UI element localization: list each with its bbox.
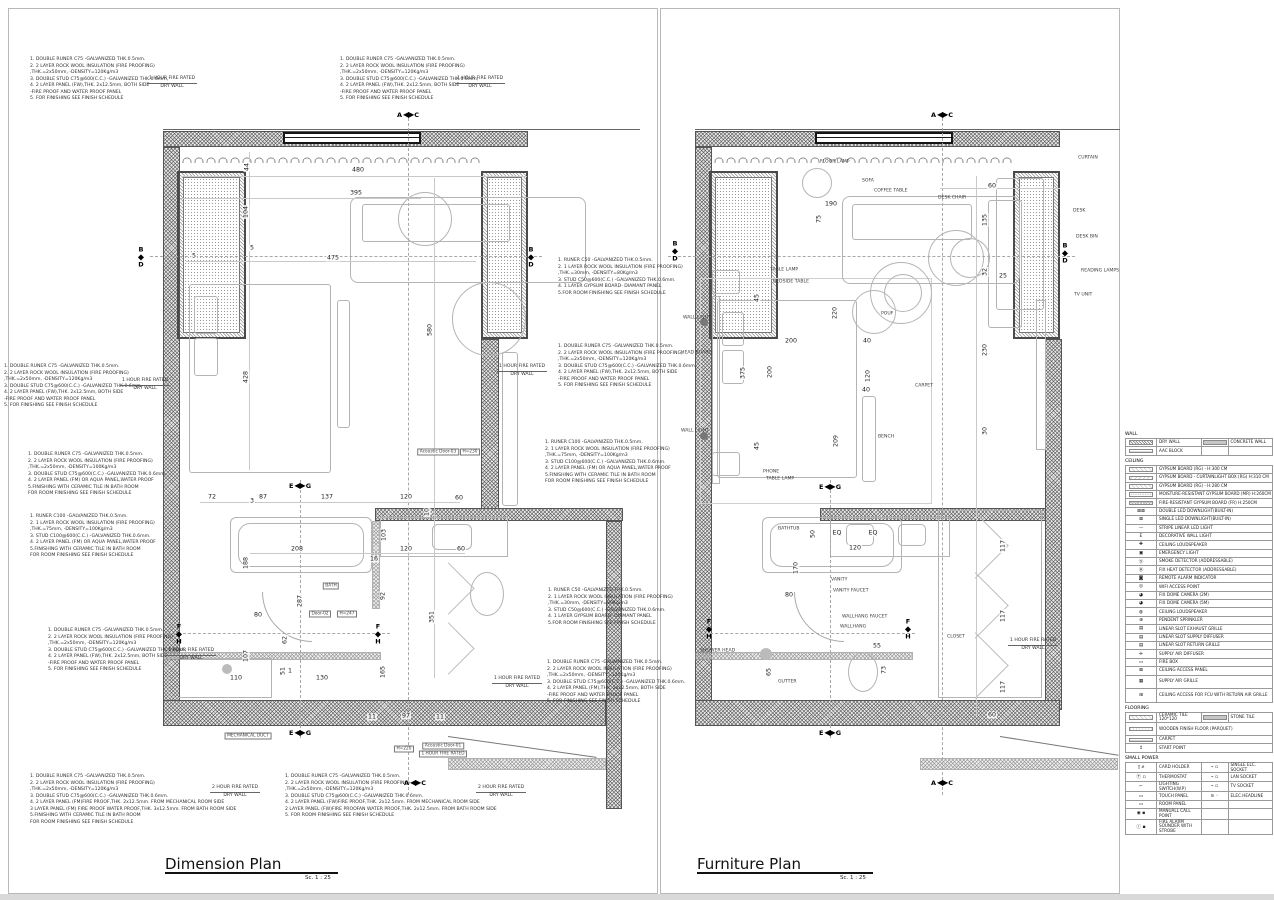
legend-symbol: ⓘ ▪ — [1126, 820, 1156, 834]
legend-label: CARPET — [1156, 736, 1272, 743]
dimension-label: 170 — [793, 561, 800, 575]
legend-section-title: SMALL POWER — [1125, 756, 1273, 761]
bedside-table — [712, 452, 740, 476]
dimension-label: 428 — [243, 370, 250, 384]
dimension-label: 165 — [380, 665, 387, 679]
legend-row: ▭TOUCH PANEL≡ ◦ELEC.HEADLINE — [1126, 792, 1272, 800]
legend-label: FIRE BOX — [1156, 659, 1272, 666]
dimension-line — [434, 178, 435, 678]
legend-label: MOISTURE-RESISTANT GYPSUM BOARD (MR) H:2… — [1156, 491, 1272, 498]
fire-rating-tag: 1 HOUR FIRE RATEDDRY WALL — [497, 364, 547, 379]
section-marker: B◆D — [672, 241, 678, 262]
legend-symbol — [1201, 439, 1228, 446]
dimension-line — [250, 553, 465, 554]
curtain-wave-line — [181, 150, 481, 163]
page-edge — [0, 894, 1274, 900]
legend-label: SINGLE ELC. SOCKET — [1228, 763, 1273, 773]
legend-symbol: ▭ — [1126, 659, 1156, 666]
legend-symbol: ⌁ ▫ — [1201, 782, 1228, 792]
legend-label: TV SOCKET — [1228, 782, 1273, 792]
legend-symbol: ◎ — [1126, 583, 1156, 590]
wallhung-toilet — [848, 652, 878, 692]
legend-symbol: Ⓢ — [1126, 558, 1156, 565]
legend-section-title: FLOORING — [1125, 706, 1273, 711]
dimension-label: 475 — [326, 255, 340, 262]
legend-label: GYPSUM BOARD (RG) - H:300 CM — [1156, 466, 1272, 473]
wall-note-block: 1. DOUBLE RUNER C75 -GALVANIZED THK.0.5m… — [30, 774, 236, 826]
dimension-label: 45 — [754, 293, 761, 303]
centerline-bd — [150, 256, 542, 257]
legend-label: LIGHTING SWITCH(W.P) — [1156, 782, 1201, 792]
legend-row: GYPSUM BOARD - CURTAINLIGHT BOX (RG) H:3… — [1126, 474, 1272, 482]
annotation-label: CLOSET — [947, 635, 965, 640]
gy1-swatch — [1129, 467, 1153, 472]
legend-row: —STRIPE LINEAR LED LIGHT — [1126, 525, 1272, 533]
legend-symbol — [1126, 439, 1156, 446]
dimension-label: 44 — [244, 162, 251, 172]
section-marker: F◆H — [905, 619, 911, 640]
carp-swatch — [1129, 738, 1153, 743]
legend-symbol — [1201, 809, 1228, 819]
legend-table: DRY WALLCONCRETE WALLAAC BLOCK — [1125, 438, 1273, 456]
legend-symbol — [1201, 713, 1228, 723]
gy4-swatch — [1129, 501, 1153, 506]
section-marker: A◀▶C — [931, 111, 953, 119]
dimension-label: 117 — [1000, 539, 1007, 553]
gy2-swatch — [1129, 476, 1153, 481]
section-marker: F◆H — [176, 624, 182, 645]
legend-label: SMOKE DETECTOR (ADDRESSABLE) — [1156, 558, 1272, 565]
legend-row: DRY WALLCONCRETE WALL — [1126, 439, 1272, 447]
vanity-basin — [898, 524, 926, 546]
dimension-label: 117 — [1000, 609, 1007, 623]
section-marker: B◆D — [1062, 243, 1068, 264]
wall-note-block: 1. RUNER C100 -GALVANIZED THK.0.5mm.2. 1… — [545, 440, 671, 486]
legend-symbol — [1201, 820, 1228, 834]
legend-row: ⊠⊠DOUBLE LED DOWNLIGHT(BUILT-IN) — [1126, 508, 1272, 516]
legend-symbol: ⊞ — [1126, 689, 1156, 702]
legend-row: GYPSUM BOARD (RG) - H:280 CM — [1126, 483, 1272, 491]
dimension-label: 135 — [982, 213, 989, 227]
legend-row: AAC BLOCK — [1126, 447, 1272, 455]
hatch-swatch — [1129, 440, 1153, 445]
coffee-table — [452, 282, 526, 356]
annotation-label: COFFEE TABLE — [874, 189, 908, 194]
bench — [862, 396, 876, 482]
legend-symbol — [1201, 447, 1228, 454]
conc-swatch — [1203, 440, 1227, 445]
legend-symbol: ⌁ ▫ — [1201, 773, 1228, 780]
dimension-label: 5 — [249, 245, 255, 252]
legend-symbol: ▭ — [1126, 801, 1156, 808]
boxed-label: H=230 — [460, 449, 480, 456]
section-marker: A◀▶C — [931, 779, 953, 787]
legend-symbol: Ⓣ ▫ — [1126, 773, 1156, 780]
centerline-eg — [830, 480, 831, 738]
legend-symbol: ◉ ▪ — [1126, 809, 1156, 819]
boxed-label: H=247 — [337, 611, 357, 618]
legend-row: ✛SUPPLY AIR DIFFUSER — [1126, 650, 1272, 658]
annotation-label: BENCH — [878, 435, 894, 440]
legend-row: MOISTURE-RESISTANT GYPSUM BOARD (MR) H:2… — [1126, 491, 1272, 499]
annotation-label: SOFA — [862, 179, 874, 184]
legend-symbol — [1126, 723, 1156, 735]
dimension-label: 190 — [824, 201, 838, 208]
dimension-label: 103 — [381, 528, 388, 542]
dimension-label: 97 — [401, 713, 411, 720]
annotation-label: SHOWER HEAD — [700, 649, 735, 654]
section-marker: E◀▶G — [289, 729, 311, 737]
legend-row: FIRE-RESISTANT GYPSUM BOARD (FR) H:250CM — [1126, 499, 1272, 507]
legend-label: LAN SOCKET — [1228, 773, 1273, 780]
fire-rating-tag: 1 HOUR FIRE RATEDDRY WALL — [147, 76, 197, 91]
legend-row: WOODEN FINISH FLOOR (PARQUET) — [1126, 723, 1272, 736]
dimension-label: 80 — [253, 612, 263, 619]
dimension-label: 60 — [456, 546, 466, 553]
section-marker: E◀▶G — [289, 482, 311, 490]
legend-symbol: ⊕ — [1126, 617, 1156, 624]
dimension-label: 395 — [349, 190, 363, 197]
annotation-label: VANITY FAUCET — [833, 589, 869, 594]
wall-note-block: 1. DOUBLE RUNER C75 -GALVANIZED THK.0.5m… — [547, 660, 685, 706]
legend-label: THERMOSTAT — [1156, 773, 1201, 780]
party-wall-right — [1045, 339, 1062, 710]
legend-label: SUPPLY AIR GRILLE — [1156, 676, 1272, 688]
legend-row: ▤LINEAR SLOT EXHAUST GRILLE — [1126, 625, 1272, 633]
legend-label: LINEAR SLOT EXHAUST GRILLE — [1156, 625, 1272, 632]
aac-swatch — [1129, 449, 1153, 454]
legend-symbol: ▤ — [1126, 625, 1156, 632]
legend-label: FIRE ALARM SOUNDER WITH STROBE — [1156, 820, 1201, 834]
legend-label: CEILING ACCESS FOR FCU WITH RETURN AIR G… — [1156, 689, 1272, 702]
dimension-label: 60 — [987, 183, 997, 190]
dimension-label: 11 — [367, 714, 377, 721]
pillow — [722, 312, 744, 346]
annotation-label: WALLHANG FAUCET — [842, 615, 887, 620]
dimension-label: 32 — [982, 267, 989, 277]
dimension-label: 200 — [767, 365, 774, 379]
legend-symbol: ⌁ ▫ — [1201, 763, 1228, 773]
legend-symbol: ✛ — [1126, 650, 1156, 657]
annotation-label: CURTAIN — [1078, 156, 1098, 161]
legend-symbol: ◍ — [1126, 608, 1156, 615]
dimension-label: 62 — [282, 635, 289, 645]
legend-row: ▭FIRE BOX — [1126, 659, 1272, 667]
dimension-label: 45 — [754, 441, 761, 451]
fire-rating-tag: 1 HOUR FIRE RATEDDRY WALL — [455, 76, 505, 91]
tv-unit — [1036, 300, 1046, 450]
legend-row: ⊕PENDENT SPRINKLER — [1126, 617, 1272, 625]
wall-note-block: 1. RUNER C50 -GALVANIZED THK.0.5mm.2. 1 … — [548, 588, 673, 627]
legend-label: CEILING LOUDSPEAKER — [1156, 608, 1272, 615]
legend-symbol: — — [1126, 525, 1156, 532]
dimension-label: 137 — [320, 494, 334, 501]
legend-label: START POINT — [1156, 744, 1272, 751]
legend-label: STONE TILE — [1228, 713, 1273, 723]
dimension-line — [940, 188, 1060, 189]
entry-threshold-wall — [448, 758, 606, 770]
dimension-label: 107 — [243, 649, 250, 663]
legend-row: ▦SUPPLY AIR GRILLE — [1126, 676, 1272, 689]
dimension-label: 80 — [784, 592, 794, 599]
dimension-label: 120 — [399, 494, 413, 501]
dimension-line — [249, 152, 250, 470]
bench — [337, 300, 350, 428]
pillow — [194, 338, 218, 376]
legend-label: LINEAR SLOT RETURN GRILLE — [1156, 642, 1272, 649]
legend-row: ⊞CEILING ACCESS FOR FCU WITH RETURN AIR … — [1126, 689, 1272, 703]
legend-label — [1228, 820, 1273, 834]
legend-label: FIX HEAT DETECTOR (ADDRESSABLE) — [1156, 566, 1272, 573]
legend-symbol: ▤ — [1126, 642, 1156, 649]
pillow — [194, 296, 218, 334]
legend-symbol: E — [1126, 533, 1156, 540]
toilet — [470, 572, 504, 616]
legend-symbol: ▤ — [1126, 634, 1156, 641]
gy3-swatch — [1129, 492, 1153, 497]
legend-label: CEILING LOUDSPEAKER — [1156, 541, 1272, 548]
exterior-wall-bottom — [163, 700, 606, 726]
entry-threshold-wall — [920, 758, 1118, 770]
legend-row: ◍CEILING LOUDSPEAKER — [1126, 608, 1272, 616]
annotation-label: TV UNIT — [1074, 293, 1092, 298]
legend-row: ✚CEILING LOUDSPEAKER — [1126, 541, 1272, 549]
legend-label: TOUCH PANEL — [1156, 792, 1201, 799]
legend-symbol: ◙ — [1126, 575, 1156, 582]
dimension-label: 130 — [315, 675, 329, 682]
annotation-label: PHONE — [763, 470, 779, 475]
legend-label: FIRE-RESISTANT GYPSUM BOARD (FR) H:250CM — [1156, 499, 1272, 506]
dimension-line — [976, 176, 977, 716]
dimension-label: 375 — [740, 366, 747, 380]
legend-symbol: ▯ ⌀ — [1126, 763, 1156, 773]
legend-label: GYPSUM BOARD (RG) - H:280 CM — [1156, 483, 1272, 490]
legend-row: ◉ ▪MANUALL CALL POINT — [1126, 809, 1272, 820]
annotation-label: CARPET — [915, 384, 933, 389]
fire-rating-tag: 1 HOUR FIRE RATEDDRY WALL — [120, 378, 170, 393]
legend-row: ▤LINEAR SLOT RETURN GRILLE — [1126, 642, 1272, 650]
section-marker: E◀▶G — [819, 483, 841, 491]
top-boundary-line — [163, 129, 640, 130]
curtain-wave-line — [713, 150, 1013, 163]
annotation-label: GUTTER — [778, 680, 797, 685]
boxed-label: BATH — [323, 583, 339, 590]
plan-scale-furniture: Sc. 1 : 25 — [840, 875, 866, 881]
shower-head — [760, 648, 772, 660]
armchair — [398, 192, 452, 246]
legend-symbol — [1126, 499, 1156, 506]
dimension-label: 40 — [862, 338, 872, 345]
dimension-label: 120 — [848, 545, 862, 552]
legend-label — [1228, 447, 1273, 454]
legend-symbol — [1126, 447, 1156, 454]
legend-symbol — [1126, 483, 1156, 490]
boxed-label: 1 HOUR FIRE RATED — [419, 751, 467, 758]
legend-row: GYPSUM BOARD (RG) - H:300 CM — [1126, 466, 1272, 474]
legend-row: ⌐LIGHTING SWITCH(W.P)⌁ ▫TV SOCKET — [1126, 782, 1272, 793]
legend-label: CERAMIC TILE 120*120 — [1156, 713, 1201, 723]
legend-label: CEILING ACCESS PANEL — [1156, 667, 1272, 674]
dimension-line — [181, 198, 421, 199]
legend-row: Ⓣ ▫THERMOSTAT⌁ ▫LAN SOCKET — [1126, 773, 1272, 781]
dimension-label: 580 — [427, 323, 434, 337]
legend-section-title: WALL — [1125, 432, 1273, 437]
dimension-label: 72 — [207, 494, 217, 501]
centerline-fh — [168, 633, 390, 634]
dimension-label: EQ — [832, 530, 843, 537]
exterior-wall-bottom — [695, 700, 1060, 726]
window-frame — [283, 132, 421, 144]
legend-row: ↥START POINT — [1126, 744, 1272, 752]
legend-symbol: ▦ — [1126, 676, 1156, 688]
dimension-label: 10 — [424, 507, 431, 517]
legend-symbol: ◕ — [1126, 600, 1156, 607]
annotation-label: DESK CHAIR — [938, 196, 966, 201]
title-underline — [165, 872, 338, 874]
dimension-label: 117 — [1000, 680, 1007, 694]
dimension-label: 55 — [872, 643, 882, 650]
annotation-label: WALL LIGHT — [681, 429, 709, 434]
section-marker: F◆H — [706, 619, 712, 640]
legend-symbol: ◕ — [1126, 592, 1156, 599]
annotation-label: READING LAMPS — [1081, 269, 1119, 274]
annotation-label: VANITY — [831, 578, 847, 583]
dimension-label: 120 — [399, 546, 413, 553]
section-marker: A◀▶C — [397, 111, 419, 119]
legend-row: CERAMIC TILE 120*120STONE TILE — [1126, 713, 1272, 724]
legend-label: MANUALL CALL POINT — [1156, 809, 1201, 819]
legend-symbol — [1126, 491, 1156, 498]
legend-row: ⊠SINGLE LED DOWNLIGHT(BUILT-IN) — [1126, 516, 1272, 524]
plan-scale-dimension: Sc. 1 : 25 — [305, 875, 331, 881]
annotation-label: TABLE LAMP — [766, 477, 794, 482]
dimension-label: 287 — [297, 594, 304, 608]
legend-label: REMOTE ALARM INDICATOR — [1156, 575, 1272, 582]
dimension-label: 200 — [784, 338, 798, 345]
legend-label — [1228, 809, 1273, 819]
legend-row: ▭ROOM PANEL — [1126, 801, 1272, 809]
shower-head — [222, 664, 232, 674]
wall-note-block: 1. DOUBLE RUNER C75 -GALVANIZED THK.0.5m… — [285, 774, 497, 820]
legend-symbol — [1126, 736, 1156, 743]
wall-note-block: 1. RUNER C100 -GALVANIZED THK.0.5mm.2. 1… — [30, 514, 156, 560]
legend-symbol: ▣ — [1126, 550, 1156, 557]
centerline-eg — [300, 480, 301, 738]
window-frame — [815, 132, 953, 144]
legend-symbol: ⊠⊠ — [1126, 508, 1156, 515]
legend-row: ⓈSMOKE DETECTOR (ADDRESSABLE) — [1126, 558, 1272, 566]
legend-label — [1228, 801, 1273, 808]
legend-label: PENDENT SPRINKLER — [1156, 617, 1272, 624]
dimension-label: EQ — [868, 530, 879, 537]
dimension-line — [181, 176, 527, 177]
legend-table: CERAMIC TILE 120*120STONE TILEWOODEN FIN… — [1125, 712, 1273, 753]
gy1-swatch — [1129, 484, 1153, 489]
legend-symbol: ⊠ — [1126, 516, 1156, 523]
legend-label: DRY WALL — [1156, 439, 1201, 446]
legend-label: CARD HOLDER — [1156, 763, 1201, 773]
plan-title-dimension: Dimension Plan — [165, 855, 281, 873]
dimension-label: 87 — [258, 494, 268, 501]
legend-symbol: ↥ — [1126, 744, 1156, 751]
legend-row: EDECORATIVE WALL LIGHT — [1126, 533, 1272, 541]
section-marker: E◀▶G — [819, 729, 841, 737]
section-marker: A◀▶C — [404, 779, 426, 787]
boxed-label: H=220 — [394, 746, 414, 753]
conc-swatch — [1203, 715, 1227, 720]
dimension-label: 188 — [243, 556, 250, 570]
dimension-label: 3 — [249, 498, 255, 505]
boxed-label: Door-02 — [309, 611, 331, 618]
centerline-ac — [408, 113, 409, 795]
legend-symbol — [1126, 474, 1156, 481]
section-marker: B◆D — [138, 247, 144, 268]
legend-symbol: ≡ ◦ — [1201, 792, 1228, 799]
legend-row: ◎WIFI ACCESS POINT — [1126, 583, 1272, 591]
top-boundary-line — [695, 129, 1120, 130]
legend-label: CONCRETE WALL — [1228, 439, 1273, 446]
boxed-label: Acoustic Door-03 — [417, 449, 459, 456]
legend-label: FIX DOME CAMERA (2M) — [1156, 592, 1272, 599]
legend-label: DECORATIVE WALL LIGHT — [1156, 533, 1272, 540]
dimension-label: 16 — [369, 556, 379, 563]
legend-label: EMERGENCY LIGHT — [1156, 550, 1272, 557]
annotation-label: POUF — [881, 312, 893, 317]
legend-table: GYPSUM BOARD (RG) - H:300 CMGYPSUM BOARD… — [1125, 465, 1273, 703]
legend-symbol — [1126, 466, 1156, 473]
legend-label: AAC BLOCK — [1156, 447, 1201, 454]
wall-note-block: 1. DOUBLE RUNER C75 -GALVANIZED THK.0.5m… — [28, 452, 166, 498]
gy1-swatch — [1129, 715, 1153, 720]
annotation-label: DESK — [1073, 209, 1085, 214]
legend-label: WOODEN FINISH FLOOR (PARQUET) — [1156, 723, 1272, 735]
legend-label: DOUBLE LED DOWNLIGHT(BUILT-IN) — [1156, 508, 1272, 515]
legend-symbol: ▭ — [1126, 792, 1156, 799]
desk — [996, 178, 1044, 310]
annotation-label: TABLE LAMP — [770, 268, 798, 273]
legend-row: ⒽFIX HEAT DETECTOR (ADDRESSABLE) — [1126, 566, 1272, 574]
fire-rating-tag: 1 HOUR FIRE RATEDDRY WALL — [492, 676, 542, 691]
fire-rating-tag: 2 HOUR FIRE RATEDDRY WALL — [210, 785, 260, 800]
legend-label: WIFI ACCESS POINT — [1156, 583, 1272, 590]
wall-note-block: 1. RUNER C50 -GALVANIZED THK.0.5mm.2. 1 … — [558, 258, 683, 297]
dimension-label: 104 — [243, 205, 250, 219]
legend-row: ▣EMERGENCY LIGHT — [1126, 550, 1272, 558]
dimension-label: 220 — [832, 306, 839, 320]
dimension-label: 230 — [982, 343, 989, 357]
annotation-label: DESK BIN — [1076, 235, 1098, 240]
floor-lamp — [802, 168, 832, 198]
legend-row: ⓘ ▪FIRE ALARM SOUNDER WITH STROBE — [1126, 820, 1272, 835]
annotation-label: BATHTUB — [778, 527, 800, 532]
dimension-label: 208 — [290, 546, 304, 553]
legend-row: ▯ ⌀CARD HOLDER⌁ ▫SINGLE ELC. SOCKET — [1126, 763, 1272, 774]
annotation-label: FLOOR LAMP — [820, 160, 849, 165]
dimension-label: 480 — [351, 167, 365, 174]
boxed-label: Acoustic Door-01 — [422, 743, 464, 750]
annotation-label: WALL LIGHT — [683, 316, 711, 321]
legend-symbol: ✚ — [1126, 541, 1156, 548]
section-marker: B◆D — [528, 247, 534, 268]
legend-row: CARPET — [1126, 736, 1272, 744]
dimension-label: 1 — [287, 668, 293, 675]
dimension-label: 75 — [816, 214, 823, 224]
legend-label: GYPSUM BOARD - CURTAINLIGHT BOX (RG) H:3… — [1156, 474, 1272, 481]
dimension-label: 92 — [380, 591, 387, 601]
fire-rating-tag: 2 HOUR FIRE RATEDDRY WALL — [476, 785, 526, 800]
dimension-label: 120 — [865, 369, 872, 383]
legend-label: SINGLE LED DOWNLIGHT(BUILT-IN) — [1156, 516, 1272, 523]
